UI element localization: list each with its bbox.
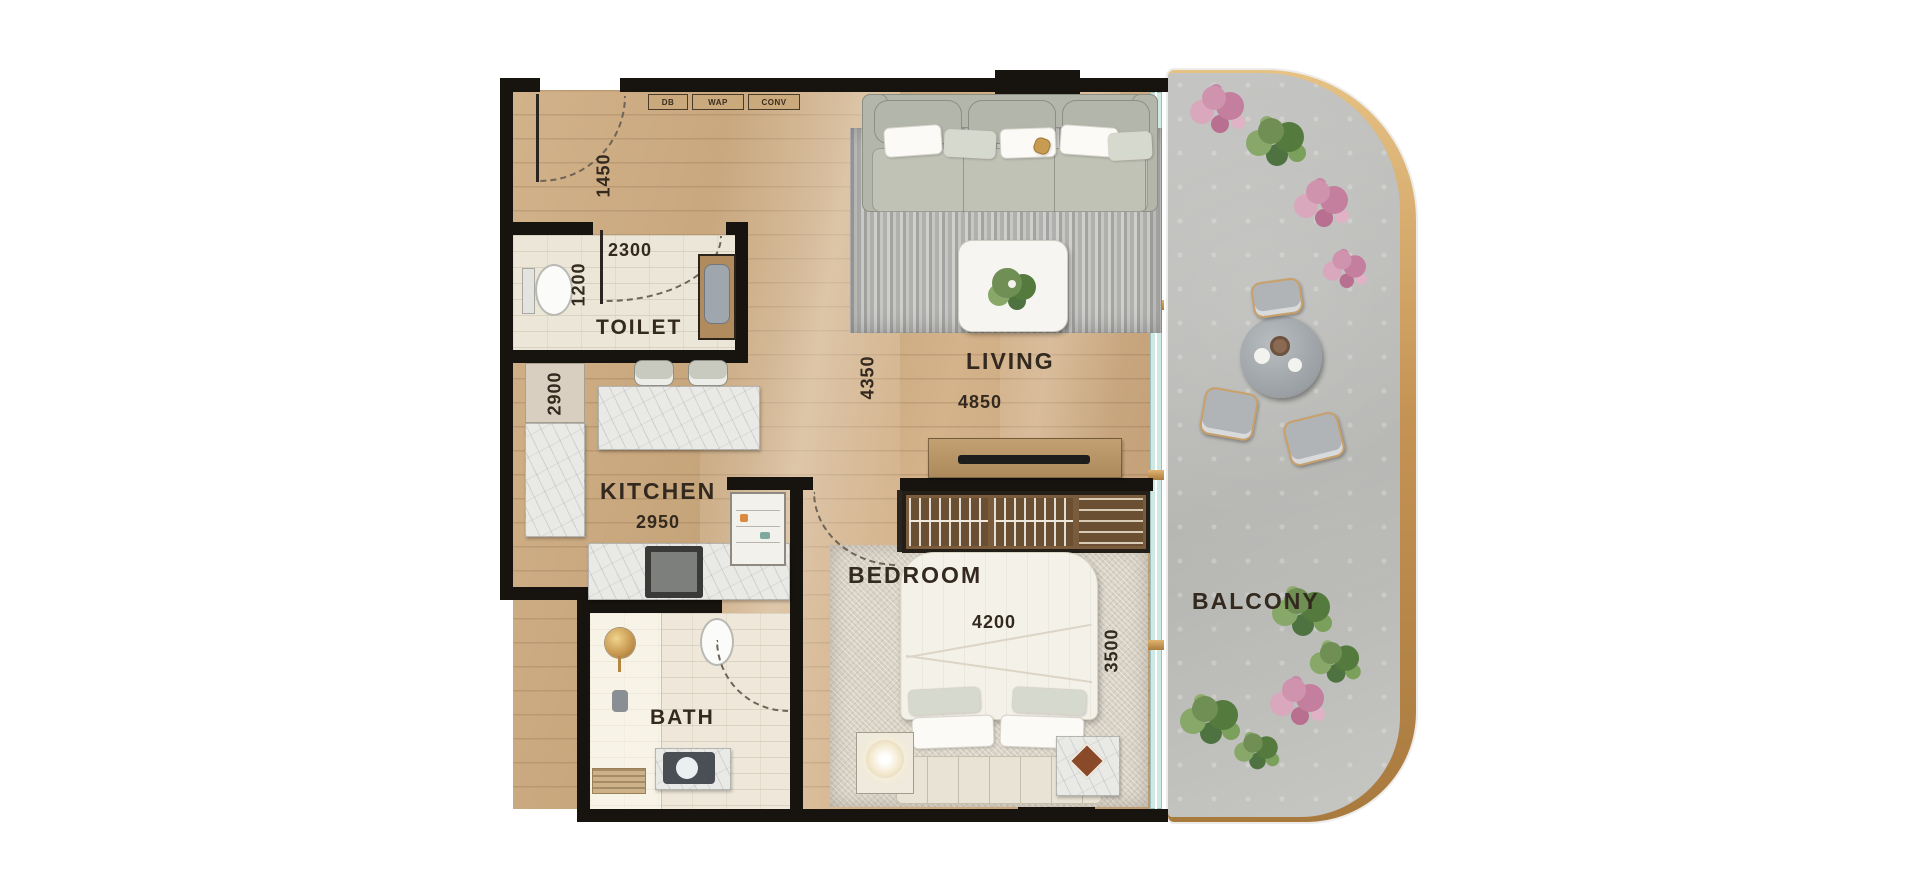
wall-bedroom-top — [900, 478, 1153, 491]
kitchen-stove — [645, 546, 703, 598]
shower-control — [612, 690, 628, 712]
flower-cluster — [1332, 250, 1351, 269]
wall-toilet-top — [513, 222, 593, 235]
kitchen-dim-width: 2950 — [636, 512, 680, 533]
bedroom-dim-depth: 3500 — [1100, 612, 1124, 688]
wall-fridge-nook-right — [790, 477, 803, 613]
kitchen-stool — [688, 360, 728, 386]
panel-wap: WAP — [692, 94, 744, 110]
plant-cluster — [1243, 733, 1263, 753]
toilet-dim-width: 2300 — [608, 240, 652, 261]
bedroom-label: BEDROOM — [848, 562, 982, 589]
panel-db: DB — [648, 94, 688, 110]
wardrobe-hanging-section — [994, 498, 1073, 546]
living-label: LIVING — [966, 348, 1055, 375]
sofa-pillow — [883, 124, 943, 158]
kitchen-dim-depth: 2900 — [534, 365, 576, 421]
kitchen-stool — [634, 360, 674, 386]
wall-toilet-right — [735, 222, 748, 363]
bath-mat — [592, 768, 646, 794]
plant-cluster — [1320, 642, 1342, 664]
kitchen-counter-left — [525, 423, 585, 537]
wall-bath-right — [790, 613, 803, 822]
living-dim-depth: 4350 — [856, 342, 880, 412]
balcony-bowl — [1270, 336, 1290, 356]
wardrobe-shelf-section — [1079, 498, 1143, 546]
flower-cluster — [1306, 180, 1330, 204]
bed-pillow — [911, 715, 994, 750]
toilet-wc-tank — [522, 268, 535, 314]
toilet-dim-depth: 1200 — [568, 252, 590, 316]
flower-cluster — [1282, 678, 1306, 702]
kitchen-island — [598, 386, 760, 450]
bath-label: BATH — [650, 706, 715, 730]
table-plant — [992, 268, 1022, 298]
bedside-lamp-icon — [866, 740, 904, 778]
plant-cluster — [1192, 696, 1218, 722]
living-dim-width: 4850 — [958, 392, 1002, 413]
balcony-plate — [1288, 358, 1302, 372]
entry-dim: 1450 — [592, 136, 616, 214]
flower-cluster — [1202, 86, 1226, 110]
table-plant-flower — [1008, 280, 1016, 288]
floorplan-canvas: BALCONY 1450 DB WAP CONV 2300 1200 TOILE… — [0, 0, 1920, 891]
fridge-item — [740, 514, 748, 522]
kitchen-label: KITCHEN — [600, 478, 716, 505]
tv-icon — [958, 455, 1090, 464]
plant-cluster — [1258, 118, 1284, 144]
sofa-pillow — [1107, 131, 1152, 161]
balcony-chair — [1250, 277, 1305, 320]
balcony-plate — [1254, 348, 1270, 364]
balcony-label: BALCONY — [1192, 588, 1320, 615]
balcony-table — [1240, 316, 1322, 398]
entry-door-leaf — [536, 94, 539, 182]
toilet-door-leaf — [600, 230, 603, 304]
sofa-pillow — [943, 129, 996, 160]
wall-left — [500, 78, 513, 600]
wall-bath-left — [577, 587, 590, 822]
balcony-chair — [1198, 386, 1260, 443]
toilet-label: TOILET — [596, 316, 682, 340]
bath-sink — [676, 757, 698, 779]
shower-head-icon — [605, 628, 635, 658]
shower-arm — [618, 656, 621, 672]
wall-top-main — [620, 78, 1168, 92]
wardrobe-hanging-section — [909, 498, 988, 546]
bed-pillow — [907, 686, 980, 716]
bed-pillow — [1011, 686, 1086, 716]
bedroom-wardrobe — [902, 491, 1150, 553]
toilet-basin — [704, 264, 730, 324]
wall-bath-top — [577, 600, 722, 613]
bedroom-dim-width: 4200 — [972, 612, 1016, 633]
panel-conv: CONV — [748, 94, 800, 110]
fridge-item — [760, 532, 770, 539]
kitchen-fridge — [730, 492, 786, 566]
glass-gold-joint — [1148, 640, 1164, 650]
